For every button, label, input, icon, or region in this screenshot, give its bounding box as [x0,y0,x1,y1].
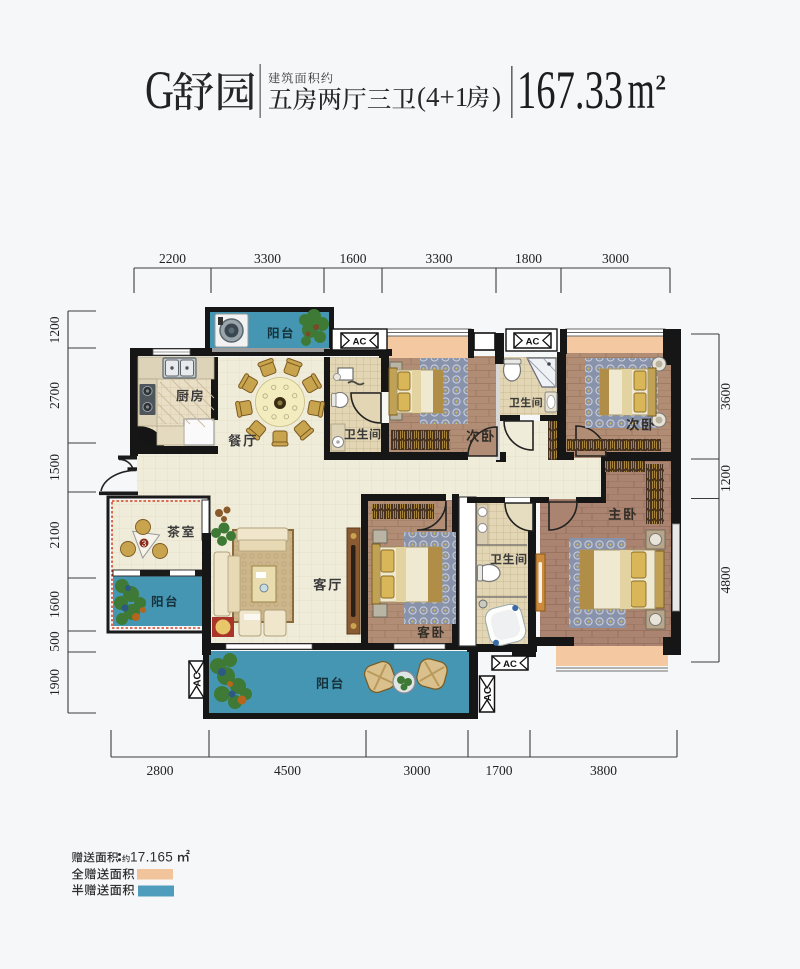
svg-text:2200: 2200 [159,251,186,266]
svg-text:3: 3 [142,540,147,549]
svg-text:2700: 2700 [47,382,62,409]
svg-text:AC: AC [353,337,367,348]
svg-text:2800: 2800 [147,763,174,778]
svg-text:AC: AC [503,659,517,670]
svg-text:500: 500 [47,631,62,652]
svg-text:m: m [628,59,655,119]
svg-text:4800: 4800 [718,566,733,593]
svg-text:4500: 4500 [274,763,301,778]
svg-text:2: 2 [656,71,667,95]
svg-text:1600: 1600 [47,591,62,618]
svg-text:): ) [492,82,501,112]
svg-text:G: G [145,61,174,120]
svg-text:3300: 3300 [254,251,281,266]
svg-text:3000: 3000 [404,763,431,778]
svg-text:(4+1: (4+1 [417,82,468,112]
svg-text:1600: 1600 [340,251,367,266]
svg-text:1200: 1200 [47,316,62,343]
svg-text:17.165: 17.165 [130,850,173,865]
svg-text:3800: 3800 [590,763,617,778]
svg-text:1200: 1200 [718,465,733,492]
svg-text:1800: 1800 [515,251,542,266]
svg-text:2100: 2100 [47,521,62,548]
svg-text:AC: AC [193,672,204,686]
svg-text:1700: 1700 [486,763,513,778]
svg-text:3300: 3300 [426,251,453,266]
svg-text:1500: 1500 [47,454,62,481]
svg-text:3000: 3000 [602,251,629,266]
svg-text:3600: 3600 [718,383,733,410]
svg-text:AC: AC [526,337,540,348]
svg-text:AC: AC [483,687,494,701]
svg-text:1900: 1900 [47,669,62,696]
svg-text:167.33: 167.33 [517,61,623,121]
